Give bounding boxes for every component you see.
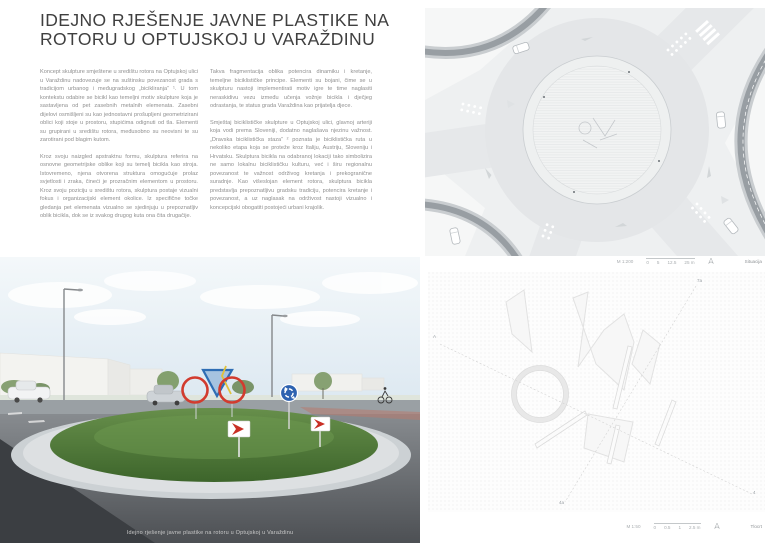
site-plan-figure: M 1:200 0 5 12.5 25 m Situacija xyxy=(425,8,765,268)
plan-title: Situacija xyxy=(745,259,762,264)
north-arrow-icon xyxy=(708,258,714,264)
sketch-scalebar: 0 0.5 1 2.5 m xyxy=(654,523,701,530)
presentation-board: IDEJNO RJEŠENJE JAVNE PLASTIKE NA ROTORU… xyxy=(0,0,768,543)
sketch-title: Tlocrt xyxy=(751,524,762,529)
paragraph-location: Smještaj biciklističke skulpture u Optuj… xyxy=(210,119,372,213)
title-line-1: IDEJNO RJEŠENJE JAVNE PLASTIKE NA xyxy=(40,10,389,30)
page-title: IDEJNO RJEŠENJE JAVNE PLASTIKE NA ROTORU… xyxy=(40,11,389,49)
text-column-left: Koncept skulpture smještene u središtu r… xyxy=(40,68,198,229)
plan-scalebar: 0 5 12.5 25 m xyxy=(646,258,694,265)
view-label-4: 4 xyxy=(753,490,756,495)
view-label-4a: 4a xyxy=(559,500,564,505)
paragraph-fragmentation: Takva fragmentacija oblika potencira din… xyxy=(210,68,372,111)
paragraph-form: Kroz svoju naizgled apstraktnu formu, sk… xyxy=(40,153,198,221)
paragraph-concept: Koncept skulpture smještene u središtu r… xyxy=(40,68,198,145)
roundabout-render-figure: Idejno rješenje javne plastike na rotoru… xyxy=(0,257,420,543)
text-column-right: Takva fragmentacija oblika potencira din… xyxy=(210,68,372,220)
render-caption: Idejno rješenje javne plastike na rotoru… xyxy=(0,530,420,536)
title-line-2: ROTORU U OPTUJSKOJ U VARAŽDINU xyxy=(40,29,375,49)
sketch-scale: M 1:50 xyxy=(626,524,640,529)
plan-scale: M 1:200 xyxy=(617,259,634,264)
sculpture-plan-illustration xyxy=(428,272,765,512)
view-label-a: A xyxy=(433,334,436,339)
site-plan-illustration xyxy=(425,8,765,256)
sculpture-plan-figure: A 7a 4a 4 M 1:50 0 0.5 1 2.5 m Tlocrt xyxy=(428,272,765,526)
sketch-caption-strip: M 1:50 0 0.5 1 2.5 m Tlocrt xyxy=(428,521,765,531)
north-arrow-icon xyxy=(714,523,720,529)
plan-caption-strip: M 1:200 0 5 12.5 25 m Situacija xyxy=(425,256,765,266)
view-label-7a: 7a xyxy=(697,278,702,283)
roundabout-render-illustration xyxy=(0,257,420,543)
